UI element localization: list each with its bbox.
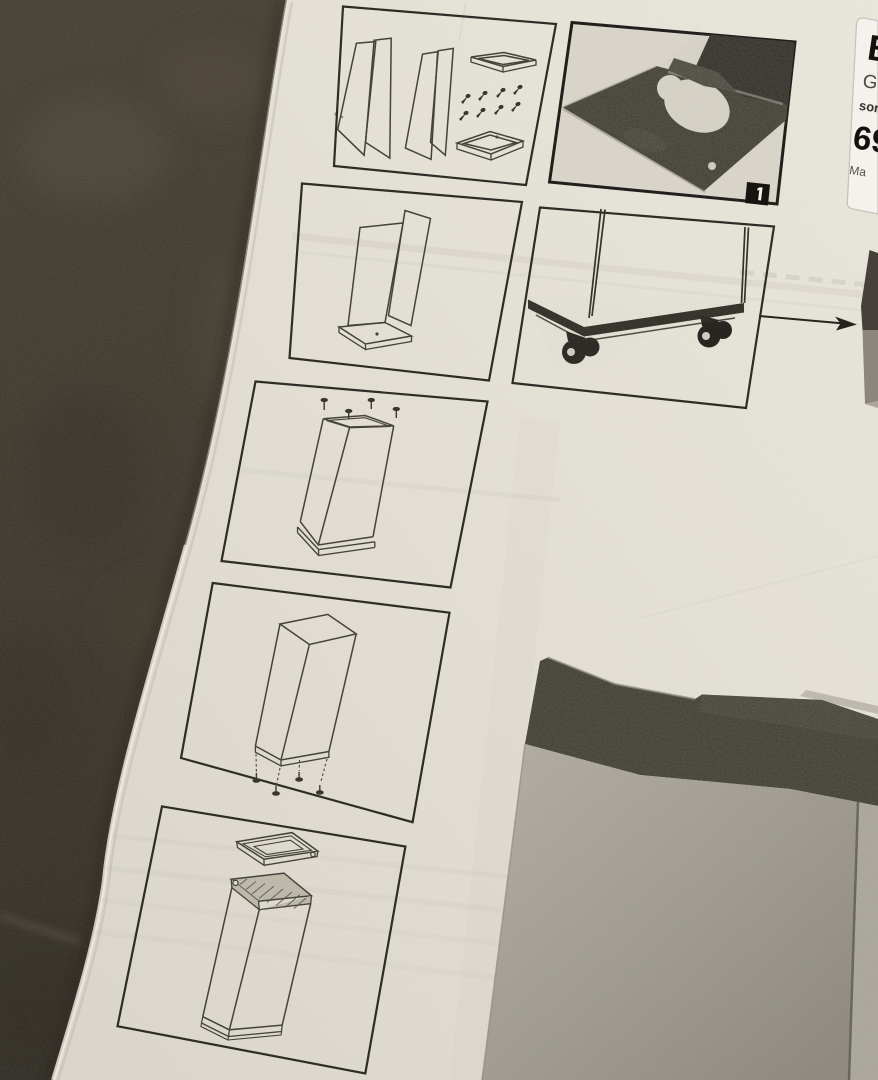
svg-text:G: G xyxy=(861,71,878,94)
svg-text:69: 69 xyxy=(851,118,878,160)
svg-text:Ma: Ma xyxy=(848,163,867,179)
svg-text:sor: sor xyxy=(858,98,878,116)
